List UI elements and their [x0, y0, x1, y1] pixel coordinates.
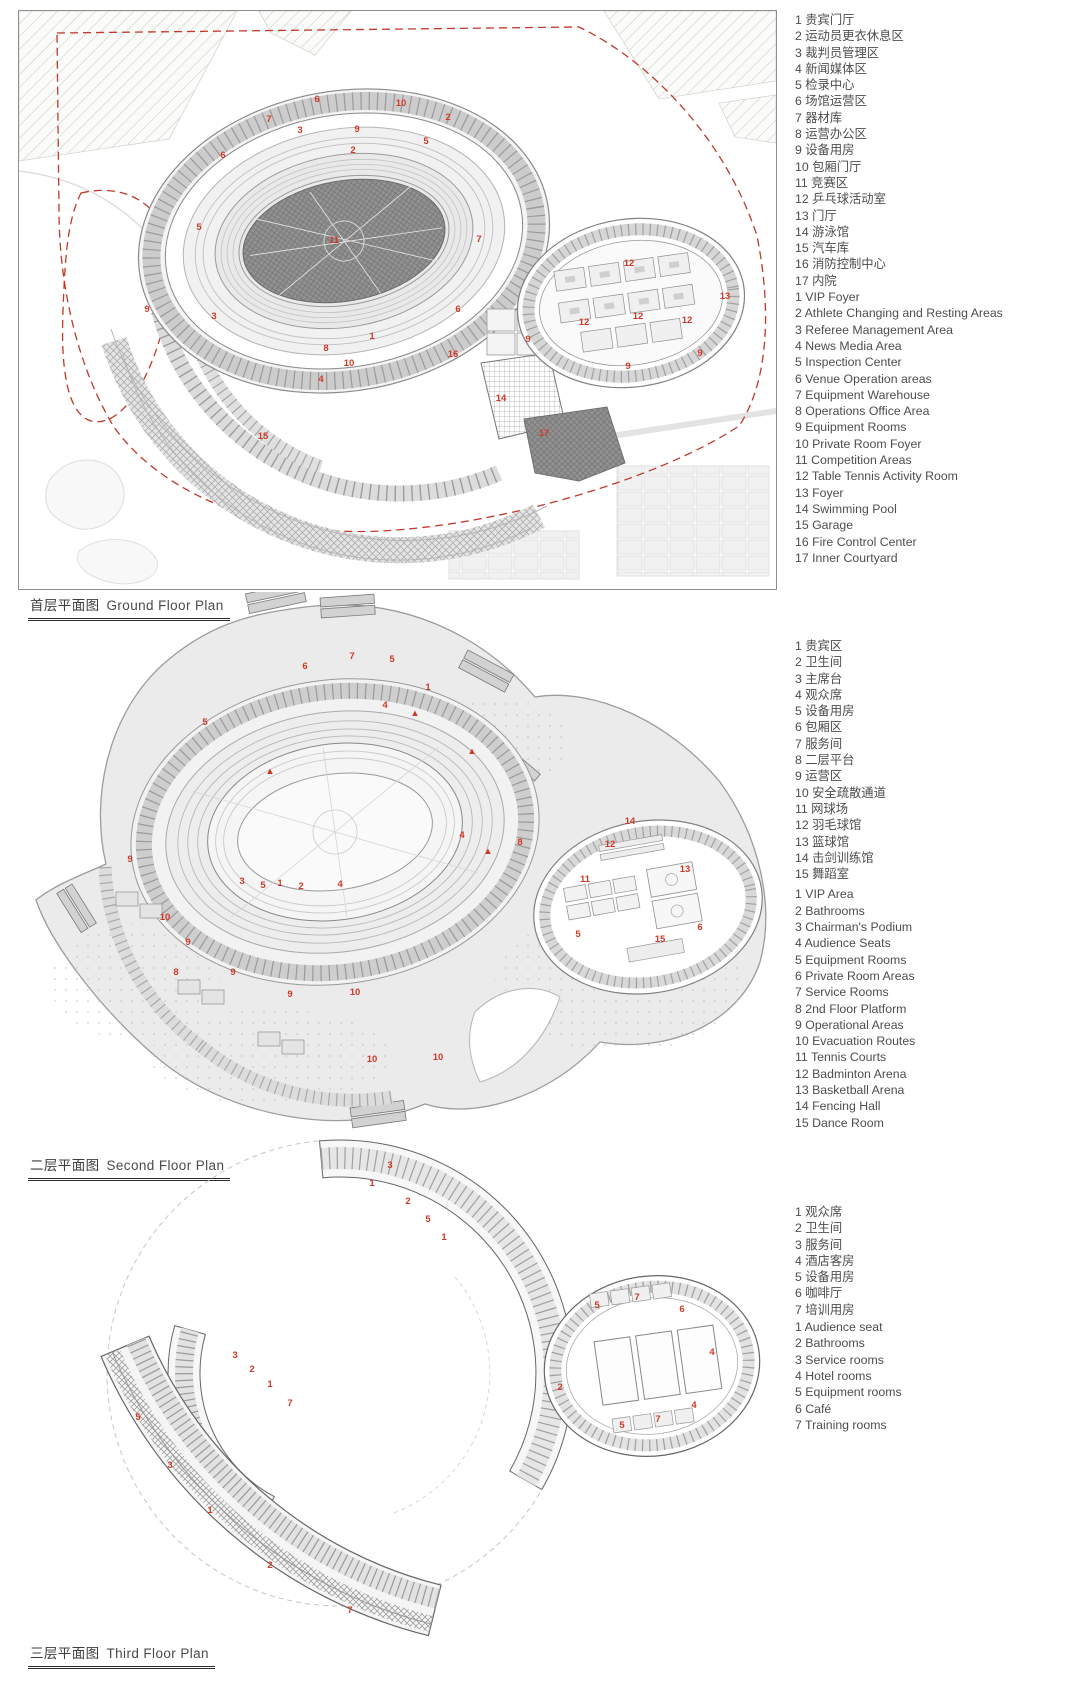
legend-item: 10 包厢门厅: [795, 159, 1003, 175]
legend-item: 13 Foyer: [795, 485, 1003, 501]
plan-marker: 2: [445, 112, 450, 123]
legend-item: 11 Tennis Courts: [795, 1049, 915, 1065]
legend-item: 14 Swimming Pool: [795, 501, 1003, 517]
legend-item: 2 运动员更衣休息区: [795, 28, 1003, 44]
plan-marker: 10: [344, 358, 355, 369]
legend-item: 3 主席台: [795, 671, 915, 687]
legend-item: 1 观众席: [795, 1204, 902, 1220]
plan-marker: 10: [367, 1054, 378, 1065]
plan-marker: 5: [196, 222, 202, 233]
legend-item: 3 裁判员管理区: [795, 45, 1003, 61]
plan-marker: 9: [354, 124, 359, 135]
second-floor-plan-drawing: 756145▲▲▲▲491035124899910814121113155610…: [20, 592, 780, 1152]
plan-marker: 15: [258, 431, 269, 442]
plan-marker: 14: [496, 393, 507, 404]
legend-item: 6 Private Room Areas: [795, 968, 915, 984]
plan-marker: 9: [185, 937, 190, 948]
second-floor-plan: 756145▲▲▲▲491035124899910814121113155610…: [20, 592, 780, 1152]
legend-item: 17 Inner Courtyard: [795, 550, 1003, 566]
legend-ground-en: 1 VIP Foyer2 Athlete Changing and Restin…: [795, 289, 1003, 566]
plan-marker: 12: [605, 839, 616, 850]
plan-marker: 2: [557, 1382, 562, 1393]
plan-marker: ▲: [410, 708, 419, 719]
legend-item: 8 2nd Floor Platform: [795, 1001, 915, 1017]
plan-marker: 9: [525, 334, 530, 345]
plan-marker: 12: [633, 311, 644, 322]
plan-marker: 11: [329, 235, 340, 246]
legend-item: 16 消防控制中心: [795, 256, 1003, 272]
legend-item: 11 竞赛区: [795, 175, 1003, 191]
plan-marker: 8: [173, 967, 178, 978]
legend-item: 13 篮球馆: [795, 834, 915, 850]
plan-marker: 6: [697, 922, 702, 933]
legend-item: 4 News Media Area: [795, 338, 1003, 354]
legend-item: 12 乒乓球活动室: [795, 191, 1003, 207]
plan-marker: 1: [207, 1505, 213, 1516]
plan-marker: 6: [302, 661, 307, 672]
legend-item: 6 场馆运营区: [795, 93, 1003, 109]
legend-item: 15 Garage: [795, 517, 1003, 533]
plan-marker: 10: [396, 98, 407, 109]
legend-item: 11 网球场: [795, 801, 915, 817]
legend-item: 8 运营办公区: [795, 126, 1003, 142]
legend-item: 13 Basketball Arena: [795, 1082, 915, 1098]
legend-item: 7 Training rooms: [795, 1417, 902, 1433]
legend-item: 9 Equipment Rooms: [795, 419, 1003, 435]
plan-marker: 10: [160, 912, 171, 923]
legend-item: 7 Service Rooms: [795, 984, 915, 1000]
plan-title-zh: 三层平面图: [30, 1646, 100, 1661]
plan-marker: 2: [249, 1364, 254, 1375]
plan-marker: 12: [624, 258, 635, 269]
legend-item: 8 二层平台: [795, 752, 915, 768]
plan-marker: 5: [575, 929, 581, 940]
legend-item: 1 贵宾区: [795, 638, 915, 654]
plan-marker: 9: [625, 361, 630, 372]
plan-marker: 1: [369, 331, 375, 342]
plan-marker: 12: [682, 315, 693, 326]
plan-marker: 5: [425, 1214, 431, 1225]
legend-item: 9 设备用房: [795, 142, 1003, 158]
legend-item: 7 培训用房: [795, 1302, 902, 1318]
legend-item: 3 Referee Management Area: [795, 322, 1003, 338]
plan-marker: 17: [539, 428, 550, 439]
legend-item: 14 击剑训练馆: [795, 850, 915, 866]
plan-marker: 4: [382, 700, 388, 711]
legend-item: 2 Bathrooms: [795, 1335, 902, 1351]
plan-marker: 6: [220, 150, 225, 161]
legend-ground-zh: 1 贵宾门厅2 运动员更衣休息区3 裁判员管理区4 新闻媒体区5 检录中心6 场…: [795, 12, 1003, 289]
legend-item: 10 安全疏散通道: [795, 785, 915, 801]
legend-item: 16 Fire Control Center: [795, 534, 1003, 550]
plan-marker: 9: [697, 348, 702, 359]
legend-item: 12 Table Tennis Activity Room: [795, 468, 1003, 484]
plan-marker: 5: [619, 1420, 625, 1431]
plan-marker: 3: [211, 311, 216, 322]
legend-item: 6 咖啡厅: [795, 1285, 902, 1301]
plan-marker: 7: [476, 234, 481, 245]
plan-marker: 1: [267, 1379, 273, 1390]
plan-marker: 8: [517, 837, 522, 848]
plan-marker: 3: [239, 876, 244, 887]
plan-marker: 6: [455, 304, 460, 315]
legend-item: 9 Operational Areas: [795, 1017, 915, 1033]
plan-marker: 1: [369, 1178, 375, 1189]
legend-item: 1 贵宾门厅: [795, 12, 1003, 28]
legend-item: 11 Competition Areas: [795, 452, 1003, 468]
legend-item: 6 Café: [795, 1401, 902, 1417]
plan-marker: 9: [144, 304, 149, 315]
legend-item: 2 Bathrooms: [795, 903, 915, 919]
legend-item: 1 VIP Foyer: [795, 289, 1003, 305]
plan-marker: 6: [314, 94, 319, 105]
plan-marker: 11: [580, 874, 591, 885]
plan-marker: 2: [298, 881, 303, 892]
legend-item: 1 Audience seat: [795, 1319, 902, 1335]
plan-marker: 8: [323, 343, 328, 354]
plan-marker: 10: [350, 987, 361, 998]
legend-item: 8 Operations Office Area: [795, 403, 1003, 419]
plan-marker: 2: [405, 1196, 410, 1207]
legend-item: 3 Chairman's Podium: [795, 919, 915, 935]
plan-marker: ▲: [265, 766, 274, 777]
legend-item: 7 器材库: [795, 110, 1003, 126]
plan-marker: 4: [337, 879, 343, 890]
ground-floor-plan-drawing: 6102739562511763981164101514179121212121…: [19, 11, 776, 589]
upper-arc-band: [320, 1140, 574, 1490]
plan-marker: 7: [655, 1414, 660, 1425]
legend-item: 5 Inspection Center: [795, 354, 1003, 370]
plan-marker: 16: [448, 349, 459, 360]
legend-item: 3 服务间: [795, 1237, 902, 1253]
plan-marker: 1: [441, 1232, 447, 1243]
legend-item: 15 汽车库: [795, 240, 1003, 256]
plan-marker: 3: [167, 1460, 172, 1471]
legend-item: 4 新闻媒体区: [795, 61, 1003, 77]
plan-marker: 10: [433, 1052, 444, 1063]
legend-item: 4 观众席: [795, 687, 915, 703]
plan-marker: 3: [387, 1160, 392, 1171]
plan-marker: ▲: [467, 746, 476, 757]
plan-marker: 4: [691, 1400, 697, 1411]
plan-marker: 4: [459, 830, 465, 841]
plan-title-en: Third Floor Plan: [107, 1646, 209, 1661]
plan-marker: 12: [579, 317, 590, 328]
plan-marker: 5: [389, 654, 395, 665]
plan-marker: 13: [680, 864, 691, 875]
plan-marker: 5: [594, 1300, 600, 1311]
legend-item: 12 羽毛球馆: [795, 817, 915, 833]
third-floor-plan-drawing: 3125132175312757642574: [20, 1128, 780, 1640]
legend-item: 15 舞蹈室: [795, 866, 915, 882]
legend-item: 10 Private Room Foyer: [795, 436, 1003, 452]
plan-marker: 9: [287, 989, 292, 1000]
architectural-sheet: 6102739562511763981164101514179121212121…: [0, 0, 1080, 1681]
plan-marker: 9: [127, 854, 132, 865]
legend-third-en: 1 Audience seat2 Bathrooms3 Service room…: [795, 1319, 902, 1433]
plan-marker: 1: [425, 682, 431, 693]
legend-item: 1 VIP Area: [795, 886, 915, 902]
plan-marker: 9: [230, 967, 235, 978]
legend-second-floor: 1 贵宾区2 卫生间3 主席台4 观众席5 设备用房6 包厢区7 服务间8 二层…: [795, 638, 915, 1131]
plan-title-third: 三层平面图Third Floor Plan: [28, 1642, 215, 1669]
plan-marker: 4: [709, 1347, 715, 1358]
plan-marker: 15: [655, 934, 666, 945]
plan-marker: 5: [135, 1412, 141, 1423]
plan-marker: 7: [266, 114, 271, 125]
plan-marker: 7: [347, 1605, 352, 1616]
legend-item: 3 Service rooms: [795, 1352, 902, 1368]
legend-item: 9 运营区: [795, 768, 915, 784]
plan-marker: 5: [260, 880, 266, 891]
legend-item: 17 内院: [795, 273, 1003, 289]
plan-marker: 14: [625, 816, 636, 827]
plan-marker: 2: [350, 145, 355, 156]
third-floor-plan: 3125132175312757642574: [20, 1128, 780, 1640]
plan-marker: 7: [287, 1398, 292, 1409]
legend-third-zh: 1 观众席2 卫生间3 服务间4 酒店客房5 设备用房6 咖啡厅7 培训用房: [795, 1204, 902, 1318]
legend-item: 14 游泳馆: [795, 224, 1003, 240]
plan-marker: 3: [232, 1350, 237, 1361]
legend-item: 13 门厅: [795, 208, 1003, 224]
legend-item: 4 酒店客房: [795, 1253, 902, 1269]
legend-item: 10 Evacuation Routes: [795, 1033, 915, 1049]
legend-item: 5 设备用房: [795, 703, 915, 719]
legend-item: 5 Equipment rooms: [795, 1384, 902, 1400]
ground-floor-plan: 6102739562511763981164101514179121212121…: [18, 10, 777, 590]
plan-marker: 13: [720, 291, 731, 302]
annex-oval-third: [533, 1262, 772, 1470]
plan-marker: ▲: [483, 846, 492, 857]
legend-second-zh: 1 贵宾区2 卫生间3 主席台4 观众席5 设备用房6 包厢区7 服务间8 二层…: [795, 638, 915, 882]
legend-item: 7 服务间: [795, 736, 915, 752]
legend-item: 2 卫生间: [795, 654, 915, 670]
plan-marker: 5: [423, 136, 429, 147]
legend-item: 5 检录中心: [795, 77, 1003, 93]
legend-ground-floor: 1 贵宾门厅2 运动员更衣休息区3 裁判员管理区4 新闻媒体区5 检录中心6 场…: [795, 12, 1003, 566]
plan-marker: 5: [202, 717, 208, 728]
plan-marker: 6: [679, 1304, 684, 1315]
legend-item: 6 Venue Operation areas: [795, 371, 1003, 387]
legend-third-floor: 1 观众席2 卫生间3 服务间4 酒店客房5 设备用房6 咖啡厅7 培训用房 1…: [795, 1204, 902, 1433]
legend-second-en: 1 VIP Area2 Bathrooms3 Chairman's Podium…: [795, 886, 915, 1130]
plan-marker: 7: [634, 1292, 639, 1303]
legend-item: 14 Fencing Hall: [795, 1098, 915, 1114]
legend-item: 4 Audience Seats: [795, 935, 915, 951]
legend-item: 2 Athlete Changing and Resting Areas: [795, 305, 1003, 321]
legend-item: 5 Equipment Rooms: [795, 952, 915, 968]
legend-item: 15 Dance Room: [795, 1115, 915, 1131]
legend-item: 6 包厢区: [795, 719, 915, 735]
legend-item: 4 Hotel rooms: [795, 1368, 902, 1384]
plan-marker: 2: [267, 1560, 272, 1571]
legend-item: 7 Equipment Warehouse: [795, 387, 1003, 403]
plan-marker: 7: [349, 651, 354, 662]
plan-marker: 4: [318, 374, 324, 385]
plan-marker: 1: [277, 878, 283, 889]
inner-courtyard: [524, 407, 625, 481]
legend-item: 2 卫生间: [795, 1220, 902, 1236]
legend-item: 5 设备用房: [795, 1269, 902, 1285]
legend-item: 12 Badminton Arena: [795, 1066, 915, 1082]
plan-marker: 3: [297, 125, 302, 136]
